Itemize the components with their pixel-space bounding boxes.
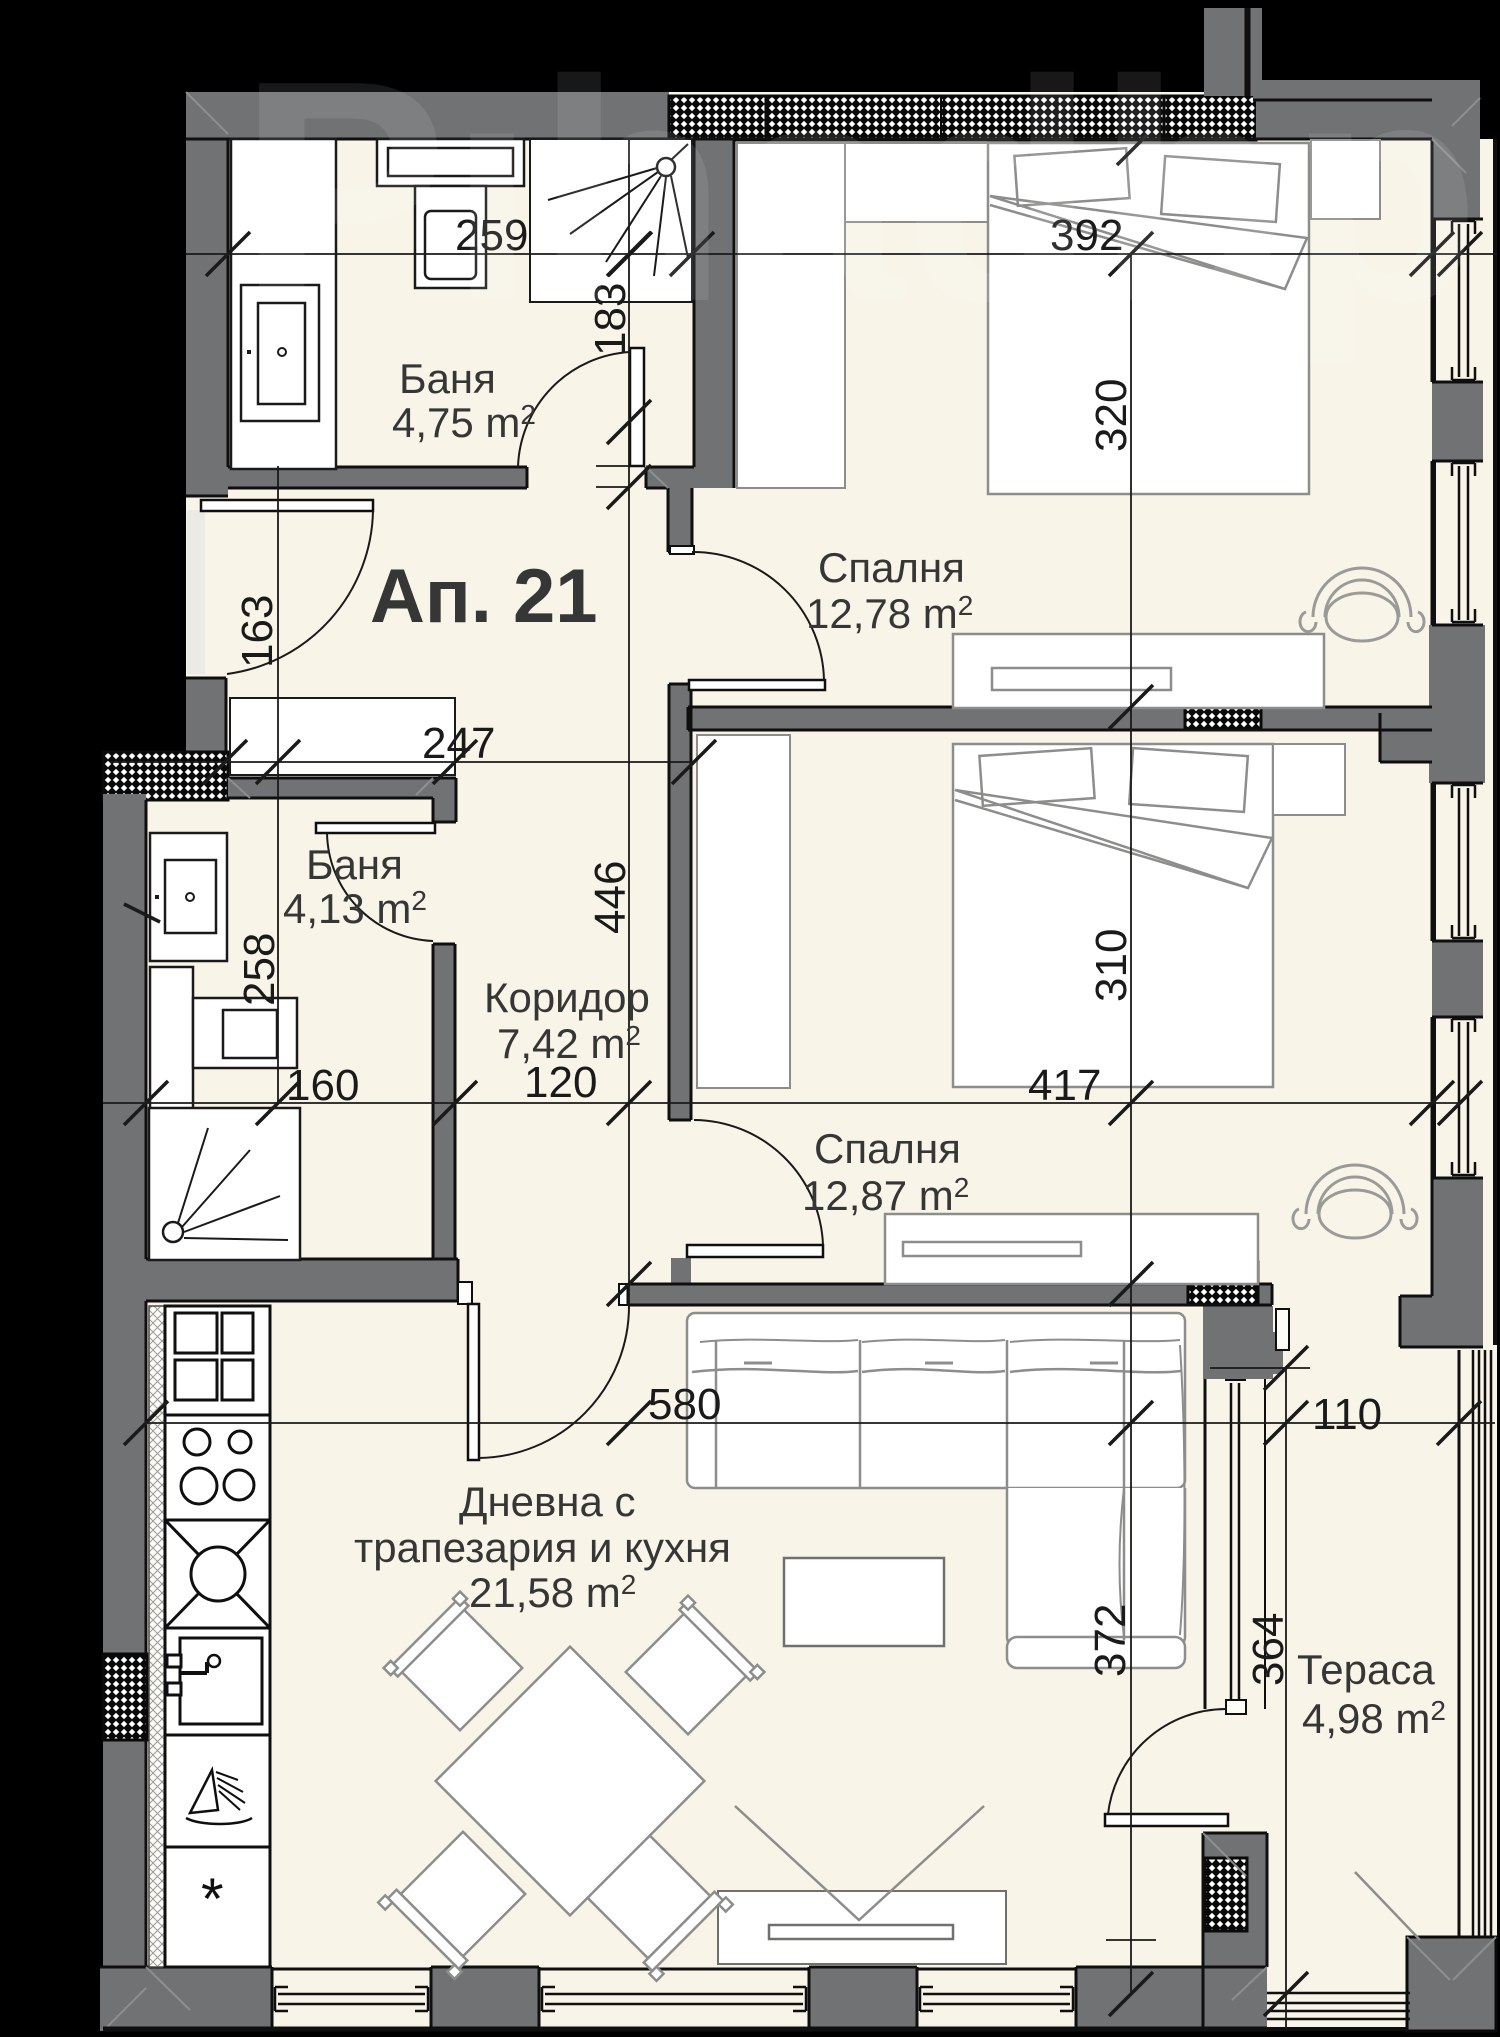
svg-text:163: 163 bbox=[233, 595, 282, 668]
svg-text:320: 320 bbox=[1087, 379, 1136, 452]
svg-text:Дневна с: Дневна с bbox=[459, 1478, 636, 1525]
svg-text:580: 580 bbox=[648, 1380, 721, 1429]
svg-text:110: 110 bbox=[1312, 1390, 1382, 1439]
svg-text:Баня: Баня bbox=[306, 841, 403, 888]
svg-text:247: 247 bbox=[422, 719, 495, 768]
svg-text:Коридор: Коридор bbox=[484, 974, 650, 1021]
svg-text:364: 364 bbox=[1244, 1613, 1293, 1686]
svg-text:446: 446 bbox=[586, 861, 635, 934]
svg-text:12,87 m2: 12,87 m2 bbox=[802, 1172, 969, 1219]
svg-text:12,78 m2: 12,78 m2 bbox=[806, 590, 973, 637]
svg-text:Спалня: Спалня bbox=[814, 1125, 961, 1172]
svg-text:Тераса: Тераса bbox=[1297, 1646, 1435, 1693]
svg-text:Pıhadbp: Pıhadbp bbox=[238, 15, 1480, 369]
svg-text:258: 258 bbox=[235, 933, 284, 1006]
svg-text:372: 372 bbox=[1086, 1604, 1135, 1677]
svg-text:*: * bbox=[201, 1867, 224, 1932]
svg-text:120: 120 bbox=[524, 1058, 597, 1107]
svg-text:160: 160 bbox=[286, 1061, 359, 1110]
svg-text:Спалня: Спалня bbox=[818, 544, 965, 591]
svg-text:4,75 m2: 4,75 m2 bbox=[392, 399, 536, 446]
svg-text:21,58 m2: 21,58 m2 bbox=[469, 1569, 636, 1616]
svg-text:310: 310 bbox=[1087, 929, 1136, 1002]
svg-text:417: 417 bbox=[1028, 1061, 1101, 1110]
svg-text:Ап. 21: Ап. 21 bbox=[370, 554, 598, 639]
svg-text:4,98 m2: 4,98 m2 bbox=[1302, 1695, 1446, 1742]
svg-text:4,13 m2: 4,13 m2 bbox=[283, 885, 427, 932]
svg-text:трапезария и кухня: трапезария и кухня bbox=[354, 1524, 731, 1571]
